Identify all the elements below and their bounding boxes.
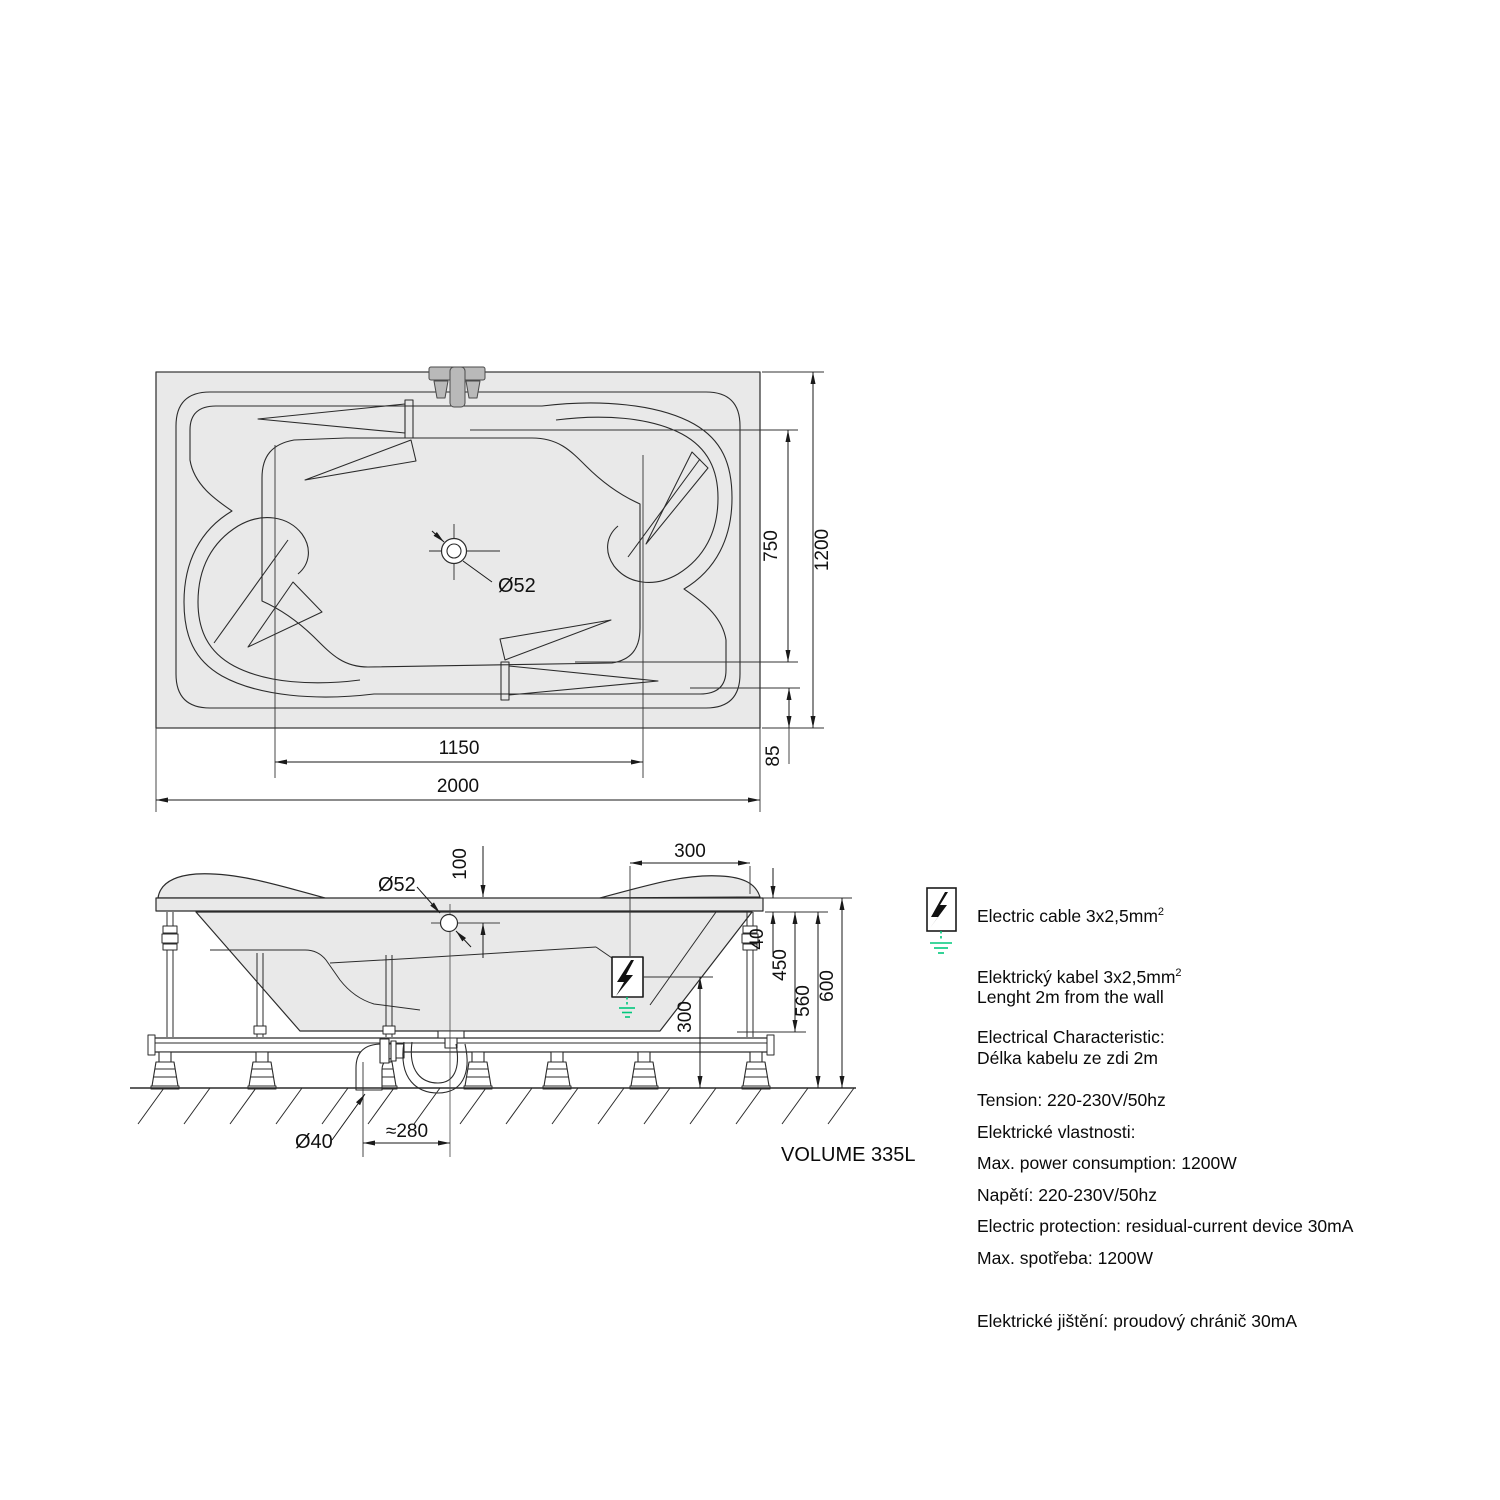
electrical-characteristics-cz: Elektrické vlastnosti: Napětí: 220-230V/… — [977, 1080, 1297, 1353]
label-100: 100 — [450, 848, 471, 880]
frame-foot — [151, 1052, 179, 1089]
label-300-top: 300 — [674, 841, 706, 862]
electrical-cz-protection: Elektrické jištění: proudový chránič 30m… — [977, 1311, 1297, 1332]
label-2000: 2000 — [437, 776, 479, 797]
faucet-knob-right — [466, 381, 480, 398]
tub-edge-right — [600, 876, 760, 898]
frame-foot — [630, 1052, 658, 1089]
electrical-cz-title: Elektrické vlastnosti: — [977, 1122, 1297, 1143]
label-750: 750 — [761, 530, 782, 562]
floor-hatching — [138, 1088, 854, 1124]
frame-foot — [742, 1052, 770, 1089]
label-560: 560 — [793, 985, 814, 1017]
ground-icon — [930, 931, 952, 953]
bathtub-technical-drawing: Ø52 750 1200 85 1150 2000 — [0, 0, 1500, 1500]
top-view: Ø52 750 1200 85 1150 2000 — [156, 367, 833, 812]
drain-outer-circle — [442, 539, 467, 564]
superscript-2: 2 — [1175, 967, 1181, 979]
electrical-cz-power: Max. spotřeba: 1200W — [977, 1248, 1297, 1269]
label-drain-side: Ø52 — [378, 874, 416, 896]
side-view: Ø52 — [130, 841, 856, 1157]
faucet-knob-left — [434, 381, 448, 398]
label-1200: 1200 — [812, 529, 833, 571]
label-450: 450 — [770, 949, 791, 981]
electrical-en-title: Electrical Characteristic: — [977, 1027, 1353, 1048]
union-nut — [380, 1039, 389, 1063]
label-drain-top: Ø52 — [498, 575, 536, 597]
frame-foot — [464, 1052, 492, 1089]
leg-adjuster-left — [162, 926, 178, 950]
rim-band — [156, 898, 763, 911]
leader-waste-pipe — [332, 1094, 365, 1140]
label-280: ≈280 — [386, 1121, 428, 1142]
faucet-stem — [450, 367, 465, 407]
tub-body — [196, 912, 752, 1031]
frame-foot — [543, 1052, 571, 1089]
label-85: 85 — [763, 745, 784, 766]
label-600: 600 — [817, 970, 838, 1002]
label-300-inner: 300 — [675, 1001, 696, 1033]
label-1150: 1150 — [439, 738, 480, 759]
label-40: 40 — [747, 928, 768, 949]
electric-legend-symbol — [927, 888, 956, 953]
electrical-cz-tension: Napětí: 220-230V/50hz — [977, 1185, 1297, 1206]
label-waste-pipe: Ø40 — [295, 1131, 333, 1153]
volume-label: VOLUME 335L — [781, 1144, 916, 1167]
frame-foot — [248, 1052, 276, 1089]
tub-edge-left — [158, 874, 325, 898]
